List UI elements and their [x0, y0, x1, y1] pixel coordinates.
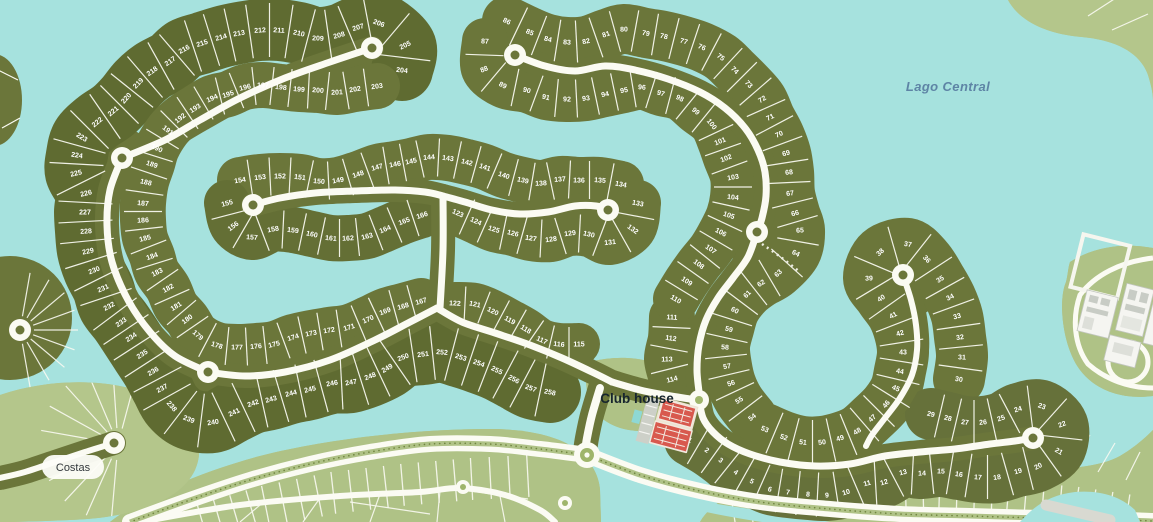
street-road: [440, 196, 443, 308]
lot-number[interactable]: 138: [535, 180, 547, 187]
lot-number[interactable]: 37: [904, 241, 913, 249]
lot-number[interactable]: 44: [895, 368, 904, 376]
lot-number[interactable]: 67: [786, 190, 795, 198]
lot-number[interactable]: 26: [979, 419, 988, 427]
lot-number[interactable]: 153: [254, 174, 266, 182]
lot-number[interactable]: 32: [956, 334, 965, 342]
lot-number[interactable]: 16: [954, 471, 963, 479]
lot-number[interactable]: 96: [638, 84, 646, 92]
lot-number[interactable]: 252: [436, 349, 448, 357]
lot-number[interactable]: 128: [545, 236, 558, 244]
lot-number[interactable]: 135: [594, 177, 606, 185]
lot-number[interactable]: 251: [417, 351, 430, 359]
lot-number[interactable]: 199: [293, 86, 305, 94]
lot-number[interactable]: 186: [137, 217, 149, 225]
costas-badge[interactable]: Costas: [42, 455, 104, 479]
club-house-label: Club house: [600, 391, 674, 406]
lot-number[interactable]: 157: [246, 234, 258, 242]
costas-label: Costas: [56, 462, 91, 474]
lot-number[interactable]: 43: [899, 350, 907, 357]
lot-number[interactable]: 9: [825, 492, 829, 499]
lot-number[interactable]: 113: [661, 356, 673, 363]
lot-number[interactable]: 8: [806, 491, 810, 498]
lot-number[interactable]: 50: [818, 439, 827, 447]
lot-number[interactable]: 176: [250, 343, 262, 351]
lot-number[interactable]: 204: [396, 67, 409, 75]
lot-number[interactable]: 131: [604, 239, 616, 247]
lot-number[interactable]: 159: [287, 227, 300, 235]
lot-number[interactable]: 129: [564, 230, 577, 238]
lot-number[interactable]: 30: [955, 376, 964, 384]
lot-number[interactable]: 14: [918, 470, 926, 477]
lot-number[interactable]: 15: [937, 468, 945, 475]
lot-number[interactable]: 177: [231, 344, 243, 351]
lot-number[interactable]: 151: [294, 174, 307, 182]
lot-number[interactable]: 187: [137, 200, 149, 208]
lot-number[interactable]: 31: [958, 354, 966, 361]
lot-number[interactable]: 17: [974, 474, 982, 482]
lot-number[interactable]: 95: [620, 87, 629, 95]
lot-number[interactable]: 111: [666, 314, 677, 322]
lot-number[interactable]: 51: [799, 439, 808, 447]
lot-number[interactable]: 57: [723, 363, 732, 371]
lot-number[interactable]: 112: [665, 335, 677, 343]
lot-number[interactable]: 18: [993, 474, 1002, 482]
lot-number[interactable]: 80: [620, 26, 628, 33]
lot-number[interactable]: 68: [785, 169, 794, 177]
lot-number[interactable]: 152: [274, 174, 286, 181]
lot-number[interactable]: 228: [80, 228, 92, 236]
lot-number[interactable]: 93: [582, 95, 591, 103]
lake-label: Lago Central: [906, 79, 990, 94]
lot-number[interactable]: 87: [481, 38, 489, 45]
lot-number[interactable]: 198: [275, 84, 287, 92]
lot-number[interactable]: 137: [554, 176, 566, 184]
masterplan-map: 2582572562552542532522512502492482472462…: [0, 0, 1153, 522]
lot-number[interactable]: 150: [313, 178, 325, 186]
lot-number[interactable]: 162: [342, 235, 354, 243]
lot-number[interactable]: 144: [423, 154, 435, 162]
lot-number[interactable]: 136: [573, 177, 585, 184]
lot-number[interactable]: 39: [865, 275, 873, 282]
lot-number[interactable]: 115: [573, 342, 584, 349]
lot-number[interactable]: 197: [257, 83, 269, 90]
lot-number[interactable]: 200: [312, 87, 324, 95]
lot-number[interactable]: 104: [727, 194, 739, 202]
lot-number[interactable]: 79: [641, 30, 650, 38]
lot-number[interactable]: 58: [721, 344, 729, 351]
lot-number[interactable]: 227: [79, 210, 91, 217]
lot-number[interactable]: 92: [563, 96, 571, 103]
lot-number[interactable]: 212: [254, 27, 266, 35]
lot-number[interactable]: 65: [796, 227, 804, 234]
lot-number[interactable]: 201: [331, 89, 343, 96]
lot-number[interactable]: 83: [563, 39, 571, 46]
lot-number[interactable]: 161: [325, 235, 337, 243]
lot-number[interactable]: 27: [961, 419, 970, 427]
lot-number[interactable]: 122: [449, 300, 461, 308]
lot-number[interactable]: 116: [553, 341, 565, 349]
lot-number[interactable]: 143: [442, 155, 455, 163]
lot-number[interactable]: 209: [312, 35, 324, 43]
lot-number[interactable]: 211: [273, 27, 285, 35]
